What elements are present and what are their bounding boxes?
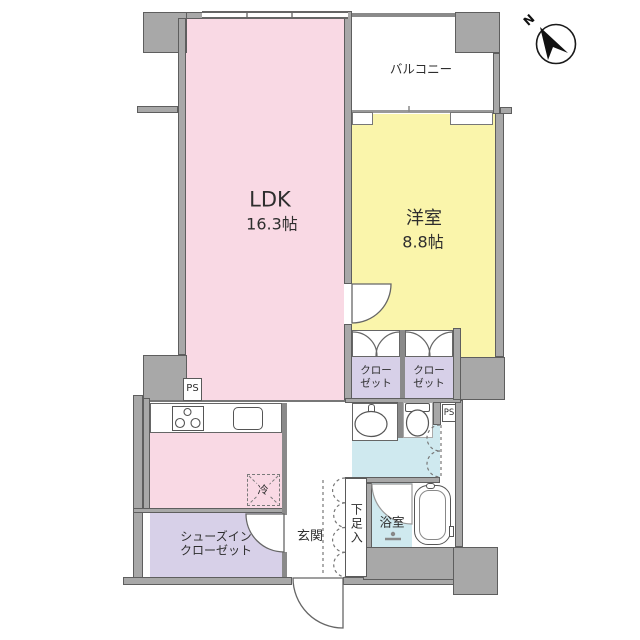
wall-segment (133, 395, 143, 585)
wall-segment (363, 547, 463, 580)
wall-segment (495, 113, 504, 357)
room-label-ldk: LDK (249, 187, 291, 212)
room-label-bathroom: 浴室 (379, 515, 404, 530)
room-label-closet-right: クロー ゼット (413, 364, 445, 389)
pipe-space-right-label: PS (444, 408, 455, 418)
wall-segment (143, 398, 150, 513)
wall-segment (433, 402, 441, 425)
wall-segment (493, 53, 500, 114)
folding-door-shoe-cabinet (323, 478, 345, 577)
wall-segment (453, 547, 498, 595)
bathtub-inner (419, 490, 446, 540)
bathtub-faucet (426, 483, 435, 489)
refrigerator-label: 冷 (257, 483, 270, 496)
room-area-ldk: 16.3帖 (246, 214, 298, 233)
room-label-closet-left: クロー ゼット (360, 364, 392, 389)
window-sill (450, 112, 493, 125)
window-mullion (246, 13, 248, 17)
room-label-shoe-cabinet: 下足入 (349, 503, 363, 545)
north-arrow-icon (540, 27, 568, 60)
wall-segment (178, 18, 186, 355)
wall-segment (282, 403, 287, 515)
wall-segment (344, 324, 352, 400)
wall-segment (344, 11, 352, 284)
wall-segment (137, 106, 178, 113)
toilet-tank (405, 403, 430, 412)
wall-pillar (455, 12, 500, 53)
window-mullion (291, 13, 293, 17)
wall-segment (453, 328, 461, 400)
room-label-western: 洋室 (406, 208, 442, 230)
wall-segment (143, 355, 187, 402)
partition-line-hall-ldk (150, 400, 345, 402)
closet-door-zone (405, 330, 453, 357)
bathtub-handle (449, 526, 454, 537)
room-label-entrance: 玄関 (297, 529, 323, 545)
wall-segment (133, 508, 287, 513)
wall-segment (455, 357, 505, 400)
stove-symbol (172, 406, 204, 431)
north-label: N (521, 11, 538, 28)
compass-icon: N (521, 11, 576, 63)
washbasin-counter (352, 403, 398, 441)
floor-plan: N LDK 16.3帖 洋室 8.8帖 バルコニー クロー ゼット クロー ゼッ… (0, 0, 640, 640)
room-label-shoe-closet: シューズイン クローゼット (180, 530, 252, 559)
wall-balcony-top (352, 13, 455, 17)
window-top (202, 11, 348, 19)
window-sill (352, 112, 373, 125)
kitchen-sink-symbol (233, 407, 263, 430)
wall-segment (186, 12, 203, 19)
washbasin-tap (368, 404, 375, 415)
pipe-space-left-label: PS (186, 383, 198, 395)
room-label-balcony: バルコニー (390, 62, 452, 77)
room-area-western: 8.8帖 (402, 232, 443, 251)
wall-segment (282, 552, 287, 577)
wall-segment (123, 577, 292, 585)
door-swing-entrance (293, 578, 343, 628)
wall-segment (455, 400, 463, 547)
closet-door-zone (352, 330, 400, 357)
